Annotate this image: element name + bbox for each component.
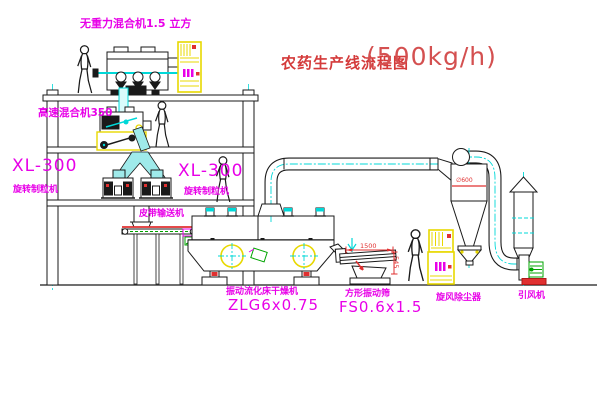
panel-display-icon [183, 69, 194, 77]
person-figure [408, 230, 423, 281]
square-vibrating-screen [335, 245, 397, 284]
indicator-light-icon [447, 234, 451, 238]
dryer-foot [202, 271, 227, 285]
panel-display-icon [435, 262, 446, 271]
diagram-capacity: (500kg/h) [366, 42, 497, 71]
control-cabinet [178, 42, 201, 92]
fan-motor [529, 262, 543, 277]
induced-draft-fan [517, 255, 546, 285]
label-high-speed-mixer: 高速混合机350 [38, 108, 112, 119]
granulator-center [139, 170, 173, 198]
person-figure [156, 102, 169, 147]
label-cyclone: 旋风除尘器 [436, 294, 481, 303]
label-granulator-center-model: XL-300 [178, 163, 243, 180]
label-fan: 引风机 [518, 292, 545, 301]
dryer-foot [294, 271, 319, 285]
indicator-light-icon [448, 265, 452, 269]
label-granulator-left-model: XL-300 [12, 158, 77, 175]
cyclone-dust-collector [451, 148, 487, 270]
control-cabinet [428, 230, 454, 284]
person-figure [78, 46, 92, 93]
process-flow-diagram: 农药生产线流程图 (500kg/h) 无重力混合机1.5 立方 高速混合机350… [0, 0, 600, 403]
label-screen-model: FS0.6x1.5 [339, 300, 422, 315]
label-granulator-center-name: 旋转制粒机 [184, 188, 229, 197]
label-belt-conveyor: 皮带输送机 [139, 210, 184, 219]
dimension-cyclone-diameter: ∅600 [456, 177, 473, 184]
label-dryer-model: ZLG6x0.75 [228, 298, 319, 313]
label-gravity-free-mixer: 无重力混合机1.5 立方 [80, 18, 191, 29]
gravity-free-mixer [93, 47, 187, 95]
dimension-screen-height: 545 [392, 256, 400, 268]
indicator-light-icon [192, 45, 196, 49]
dimension-screen-length: 1500 [360, 242, 377, 250]
indicator-light-icon [196, 72, 200, 76]
label-granulator-left-name: 旋转制粒机 [13, 186, 58, 195]
fluid-bed-dryer [188, 208, 334, 285]
